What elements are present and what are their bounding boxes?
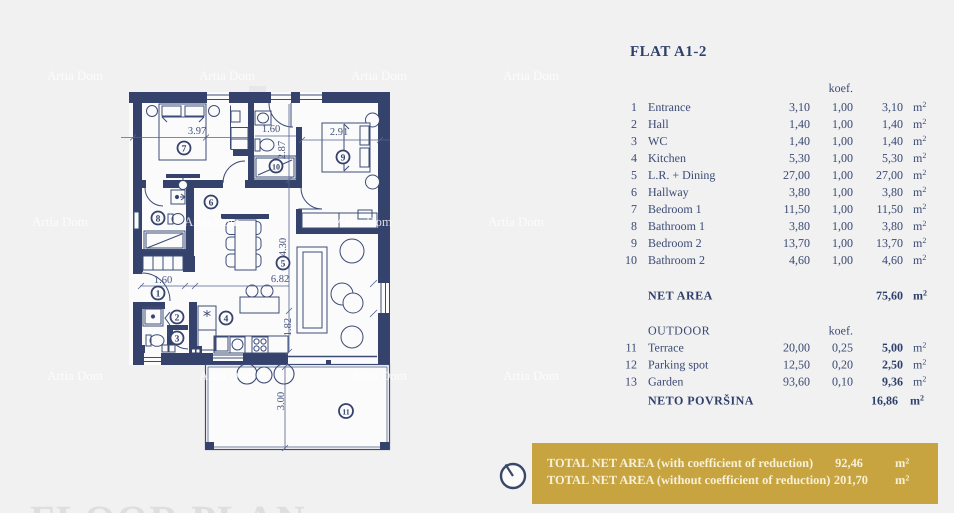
svg-text:Entrance: Entrance [648,100,691,114]
svg-text:Artia Dom: Artia Dom [47,68,103,83]
svg-text:1,40: 1,40 [789,117,810,131]
svg-text:13: 13 [625,375,637,389]
svg-text:Artia Dom: Artia Dom [351,368,407,383]
svg-text:13,70: 13,70 [876,236,903,250]
svg-text:m2: m2 [913,289,927,303]
svg-text:Artia Dom: Artia Dom [336,214,392,229]
svg-text:1,00: 1,00 [832,236,853,250]
svg-text:L.R. + Dining: L.R. + Dining [648,168,715,182]
svg-text:11: 11 [625,341,637,355]
svg-text:1: 1 [156,290,161,300]
svg-text:1.60: 1.60 [262,124,280,135]
svg-text:m2: m2 [913,100,926,114]
svg-text:2: 2 [175,314,180,324]
svg-text:4: 4 [631,151,637,165]
svg-text:2: 2 [631,117,637,131]
svg-text:6: 6 [631,185,637,199]
svg-text:1,40: 1,40 [789,134,810,148]
svg-text:6.82: 6.82 [271,274,289,285]
svg-text:Artia Dom: Artia Dom [503,68,559,83]
svg-text:1,00: 1,00 [832,151,853,165]
svg-text:NET AREA: NET AREA [648,289,713,303]
svg-text:koef.: koef. [829,81,853,95]
svg-text:5: 5 [281,260,286,270]
svg-text:koef.: koef. [829,324,853,338]
svg-text:m2: m2 [913,253,926,267]
svg-text:m2: m2 [913,219,926,233]
svg-text:Terrace: Terrace [648,341,684,355]
svg-text:11,50: 11,50 [876,202,903,216]
svg-text:2,50: 2,50 [882,358,903,372]
svg-text:Parking spot: Parking spot [648,358,709,372]
svg-text:11: 11 [342,408,350,417]
svg-text:1,00: 1,00 [832,185,853,199]
svg-text:1,00: 1,00 [832,253,853,267]
svg-text:FLAT A1-2: FLAT A1-2 [630,44,707,60]
svg-text:OUTDOOR: OUTDOOR [648,324,710,338]
svg-text:1,00: 1,00 [832,168,853,182]
svg-text:m2: m2 [913,358,926,372]
svg-text:3: 3 [631,134,637,148]
svg-text:Garden: Garden [648,375,683,389]
svg-text:27,00: 27,00 [876,168,903,182]
svg-text:m2: m2 [910,394,924,408]
svg-text:m2: m2 [913,185,926,199]
svg-text:4: 4 [224,315,229,325]
svg-text:1,00: 1,00 [832,100,853,114]
svg-text:1,40: 1,40 [882,117,903,131]
svg-text:m2: m2 [913,236,926,250]
svg-text:WC: WC [648,134,667,148]
svg-text:Artia Dom: Artia Dom [47,368,103,383]
svg-text:5,30: 5,30 [882,151,903,165]
svg-text:1,40: 1,40 [882,134,903,148]
svg-text:TOTAL NET AREA (without coeffi: TOTAL NET AREA (without coefficient of r… [547,473,830,487]
svg-text:1.82: 1.82 [283,318,294,336]
svg-text:3.00: 3.00 [276,392,287,410]
svg-text:12,50: 12,50 [783,358,810,372]
svg-text:3,10: 3,10 [789,100,810,114]
svg-text:5: 5 [631,168,637,182]
svg-text:Artia Dom: Artia Dom [199,68,255,83]
svg-text:3,80: 3,80 [789,185,810,199]
svg-text:201,70: 201,70 [834,473,868,487]
svg-text:TOTAL NET AREA (with coefficie: TOTAL NET AREA (with coefficient of redu… [547,456,813,470]
svg-text:Kitchen: Kitchen [648,151,686,165]
svg-text:3,80: 3,80 [882,185,903,199]
svg-text:8: 8 [156,215,161,225]
svg-text:3,80: 3,80 [789,219,810,233]
svg-text:1: 1 [631,100,637,114]
svg-text:92,46: 92,46 [835,456,863,470]
svg-text:Artia Dom: Artia Dom [32,214,88,229]
svg-text:Bedroom 2: Bedroom 2 [648,236,702,250]
svg-text:4,60: 4,60 [789,253,810,267]
svg-text:NETO POVRŠINA: NETO POVRŠINA [648,394,754,408]
svg-text:3: 3 [175,335,180,345]
svg-text:Artia Dom: Artia Dom [488,214,544,229]
svg-text:m2: m2 [913,341,926,355]
svg-text:1.60: 1.60 [154,275,172,286]
svg-text:m2: m2 [913,202,926,216]
svg-text:Bedroom 1: Bedroom 1 [648,202,702,216]
svg-text:12: 12 [625,358,637,372]
svg-text:6: 6 [209,199,214,209]
svg-text:FLOOR PLAN: FLOOR PLAN [30,497,306,513]
svg-text:4.30: 4.30 [278,238,289,256]
svg-text:5,00: 5,00 [882,341,903,355]
svg-text:m2: m2 [913,375,926,389]
svg-text:0,20: 0,20 [832,358,853,372]
svg-text:1,00: 1,00 [832,219,853,233]
svg-text:0,25: 0,25 [832,341,853,355]
svg-text:93,60: 93,60 [783,375,810,389]
svg-text:1,00: 1,00 [832,134,853,148]
svg-text:75,60: 75,60 [876,289,903,303]
svg-text:3,80: 3,80 [882,219,903,233]
svg-text:2.91: 2.91 [330,127,348,138]
svg-text:m2: m2 [913,134,926,148]
svg-text:27,00: 27,00 [783,168,810,182]
svg-text:5,30: 5,30 [789,151,810,165]
svg-text:2.87: 2.87 [277,141,288,159]
svg-text:m2: m2 [913,117,926,131]
svg-text:Hallway: Hallway [648,185,689,199]
svg-text:10: 10 [625,253,637,267]
svg-text:1,00: 1,00 [832,117,853,131]
svg-text:1,00: 1,00 [832,202,853,216]
svg-text:9: 9 [631,236,637,250]
svg-text:11,50: 11,50 [783,202,810,216]
svg-text:8: 8 [631,219,637,233]
svg-text:Artia Dom: Artia Dom [503,368,559,383]
svg-text:10: 10 [272,163,280,172]
svg-text:7: 7 [182,145,187,155]
svg-text:3,10: 3,10 [882,100,903,114]
svg-text:0,10: 0,10 [832,375,853,389]
svg-text:16,86: 16,86 [871,394,898,408]
svg-text:20,00: 20,00 [783,341,810,355]
svg-text:Bathroom 2: Bathroom 2 [648,253,705,267]
svg-text:3.97: 3.97 [188,126,206,137]
svg-text:Artia Dom: Artia Dom [351,68,407,83]
svg-text:m2: m2 [913,151,926,165]
svg-text:13,70: 13,70 [783,236,810,250]
svg-text:Hall: Hall [648,117,669,131]
svg-text:9: 9 [341,154,346,164]
svg-text:9,36: 9,36 [882,375,903,389]
svg-text:Artia Dom: Artia Dom [199,368,255,383]
svg-text:4,60: 4,60 [882,253,903,267]
svg-text:Bathroom 1: Bathroom 1 [648,219,705,233]
svg-text:Artia Dom: Artia Dom [184,214,240,229]
svg-text:m2: m2 [913,168,926,182]
svg-text:7: 7 [631,202,637,216]
